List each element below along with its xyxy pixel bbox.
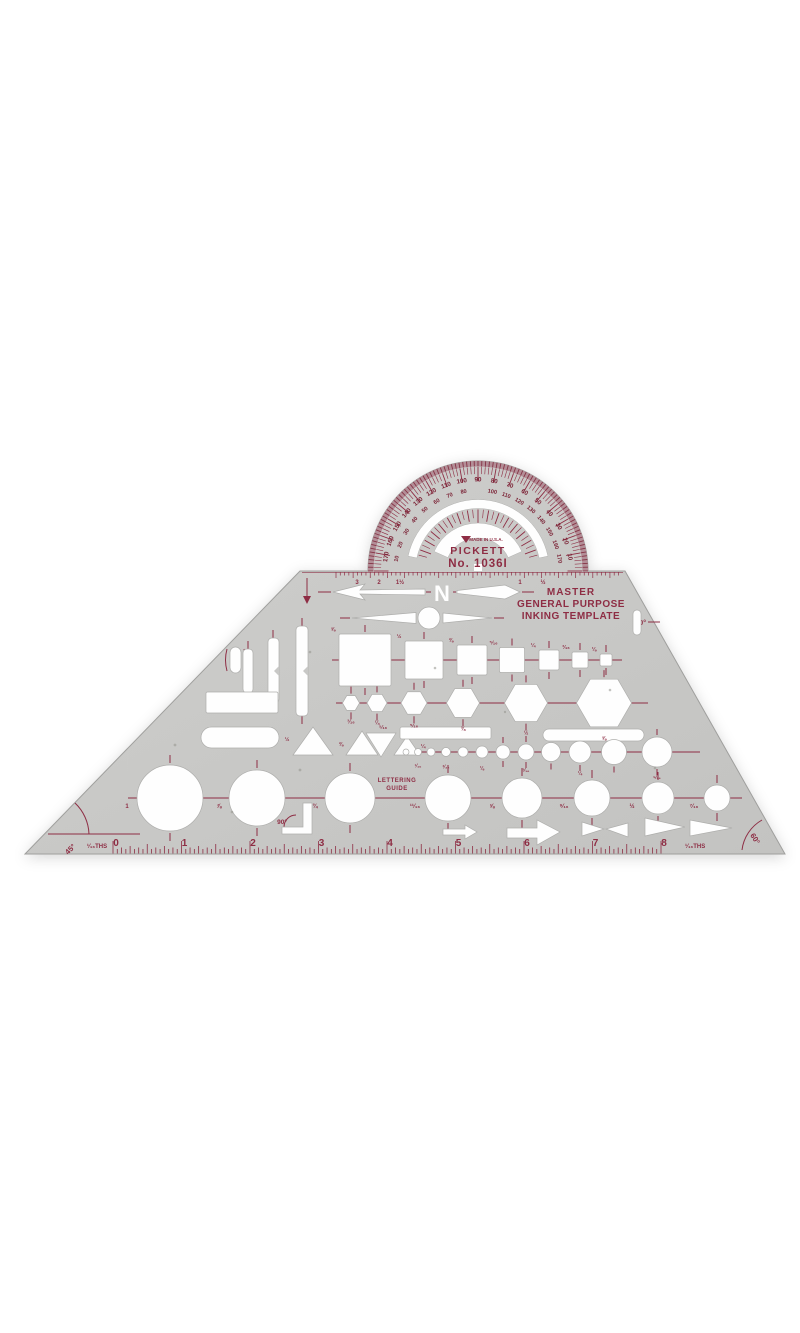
circle-size-label: ³⁄₃₂	[442, 765, 449, 771]
circle-size-label: ⁷⁄₁₆	[690, 804, 699, 810]
large-circle-cutout	[325, 773, 375, 823]
title-line-3: INKING TEMPLATE	[522, 611, 620, 622]
square-size-label: ¼	[531, 642, 536, 649]
protractor-degree-outer: 90	[475, 477, 482, 484]
product-photo-stage: 1017020160301504014050130601207011080100…	[0, 0, 800, 1333]
top-edge-size-label: ½	[540, 579, 545, 586]
bar-slot-1-cutout	[243, 649, 253, 693]
protractor-degree-inner: 10	[394, 555, 401, 562]
circle-size-label: ³⁄₁₆	[523, 768, 530, 774]
small-circle-cutout	[602, 740, 627, 765]
circle-size-label: ⁵⁄₁₆	[653, 775, 661, 781]
square-cutout	[539, 650, 559, 670]
ruler-inch-number: 7	[593, 838, 599, 849]
square-cutout	[339, 634, 391, 686]
large-circle-cutout	[574, 780, 610, 816]
square-cutout	[500, 648, 525, 673]
square-size-label: ⁵⁄₁₆	[489, 641, 498, 647]
rectangle-slot-cutout	[206, 692, 278, 713]
hexagon-size-label: ³⁄₁₆	[347, 718, 355, 725]
ruler-inch-number: 8	[661, 838, 667, 849]
square-cutout	[405, 641, 443, 679]
ruler-inch-number: 0	[113, 838, 119, 849]
angle-90-label: 90°	[277, 818, 287, 826]
title-line-1: MASTER	[547, 587, 595, 598]
small-circle-cutout	[403, 749, 409, 755]
square-cutout	[457, 645, 487, 675]
hexagon-size-label: ⁵⁄₁₆	[410, 723, 419, 729]
small-circle-cutout	[458, 747, 468, 757]
horizontal-slot-2-cutout	[543, 729, 644, 741]
square-size-label: ⅝	[331, 627, 336, 633]
obround-slot-cutout	[201, 727, 279, 748]
large-circle-cutout	[229, 770, 285, 826]
small-circle-cutout	[427, 748, 435, 756]
square-size-label: ³⁄₁₆	[562, 644, 570, 651]
small-circle-cutout	[496, 745, 510, 759]
square-cutout	[600, 654, 612, 666]
needle-circle-cutout	[418, 607, 440, 629]
ruler-inch-number: 3	[319, 838, 325, 849]
ruler-left-units-label: ¹⁄₁₆THS	[87, 843, 107, 850]
small-circle-cutout	[476, 746, 488, 758]
large-circle-cutout	[704, 785, 730, 811]
large-circle-cutout	[502, 778, 542, 818]
square-size-label: ⅛	[592, 647, 597, 653]
small-circle-cutout	[569, 741, 591, 763]
triangle-size-label: ¼	[421, 743, 426, 750]
large-circle-cutout	[642, 782, 674, 814]
small-circle-cutout	[542, 743, 561, 762]
circle-size-label: ½	[629, 803, 634, 810]
small-circle-cutout	[518, 744, 534, 760]
circle-size-label: ¹⁄₁₆	[415, 764, 422, 770]
title-line-2: GENERAL PURPOSE	[517, 599, 625, 610]
ruler-inch-number: 2	[250, 838, 256, 849]
circle-size-label: ¹¹⁄₁₆	[410, 803, 420, 810]
triangle-size-label: ½	[285, 736, 290, 743]
small-circle-cutout	[442, 748, 451, 757]
large-circle-cutout	[137, 765, 203, 831]
square-size-label: ½	[397, 633, 402, 640]
triangle-size-label: ⅜	[339, 742, 344, 748]
lettering-guide-line-2: GUIDE	[386, 786, 408, 792]
small-circle-cutout	[642, 737, 672, 767]
ruler-inch-number: 5	[456, 838, 462, 849]
tiny-slot-cutout	[230, 647, 241, 673]
circle-size-label: ⁹⁄₁₆	[559, 804, 568, 810]
triangle-size-label: ⁵⁄₁₆	[379, 725, 388, 731]
ruler-inch-number: 4	[387, 838, 393, 849]
edge-slot-cutout	[633, 610, 641, 635]
square-size-label: ⅜	[449, 638, 454, 644]
brand-name: PICKETT	[450, 545, 505, 557]
model-number: No. 1036I	[448, 558, 508, 570]
drafting-template-photo: 1017020160301504014050130601207011080100…	[0, 0, 800, 1333]
ruler-right-units-label: ¹⁄₁₆THS	[685, 843, 705, 850]
north-letter-cutout: N	[434, 581, 450, 606]
square-cutout	[572, 652, 588, 668]
lettering-guide-line-1: LETTERING	[378, 778, 417, 784]
top-edge-size-label: 1½	[396, 579, 404, 586]
hexagon-size-label: ½	[524, 730, 529, 737]
protractor-degree-inner: 80	[460, 489, 467, 496]
ruler-inch-number: 1	[182, 838, 188, 849]
hexagon-size-label: ⅜	[461, 726, 466, 732]
made-in-usa-label: MADE IN U.S.A.	[469, 537, 503, 542]
hexagon-size-label: ⅝	[602, 736, 607, 742]
large-circle-cutout	[425, 775, 471, 821]
ruler-inch-number: 6	[524, 838, 530, 849]
